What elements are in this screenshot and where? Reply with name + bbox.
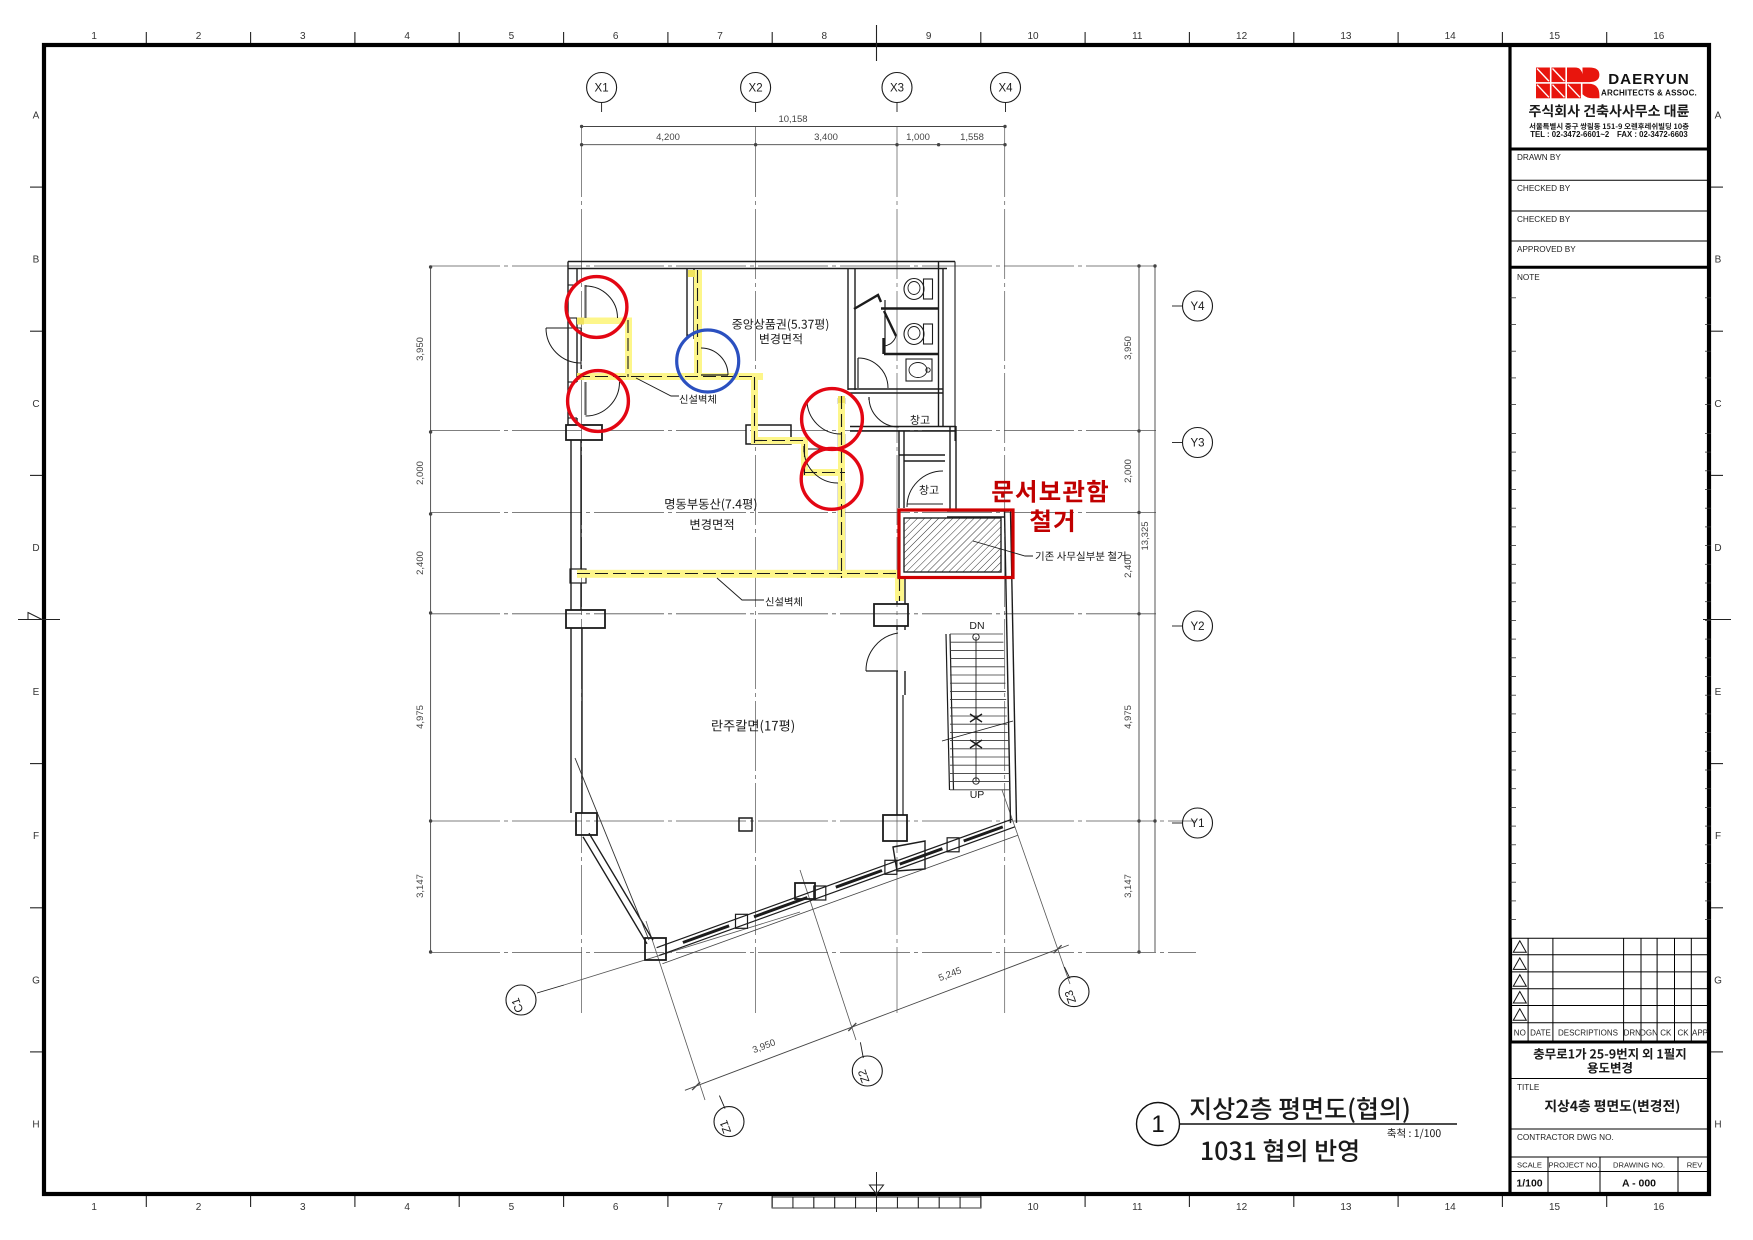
svg-text:16: 16	[1653, 1202, 1665, 1213]
svg-text:B: B	[1715, 255, 1722, 266]
svg-text:4: 4	[404, 1202, 410, 1213]
svg-text:ARCHITECTS & ASSOC.: ARCHITECTS & ASSOC.	[1601, 89, 1697, 98]
svg-text:3,147: 3,147	[415, 874, 426, 898]
svg-text:DESCRIPTIONS: DESCRIPTIONS	[1558, 1029, 1618, 1038]
svg-text:15: 15	[1549, 31, 1561, 42]
svg-text:APPROVED BY: APPROVED BY	[1517, 245, 1576, 254]
svg-text:2,000: 2,000	[415, 461, 426, 485]
svg-text:TITLE: TITLE	[1517, 1083, 1540, 1092]
svg-text:E: E	[1715, 687, 1722, 698]
svg-text:G: G	[1714, 975, 1722, 986]
svg-text:12: 12	[1236, 31, 1248, 42]
svg-text:DATE: DATE	[1530, 1029, 1551, 1038]
svg-text:TEL : 02-3472-6601~2 FAX : 02-: TEL : 02-3472-6601~2 FAX : 02-3472-6603	[1530, 130, 1688, 139]
svg-text:13: 13	[1340, 1202, 1352, 1213]
svg-text:PROJECT NO.: PROJECT NO.	[1549, 1161, 1600, 1170]
svg-text:4,975: 4,975	[415, 705, 426, 729]
svg-text:1/100: 1/100	[1516, 1178, 1542, 1190]
svg-text:1: 1	[91, 1202, 97, 1213]
svg-text:9: 9	[926, 31, 932, 42]
svg-text:16: 16	[1653, 31, 1665, 42]
svg-text:X2: X2	[749, 83, 763, 95]
svg-text:14: 14	[1445, 31, 1457, 42]
svg-text:12: 12	[1236, 1202, 1248, 1213]
svg-text:F: F	[33, 831, 39, 842]
svg-text:CONTRACTOR DWG NO.: CONTRACTOR DWG NO.	[1517, 1133, 1614, 1142]
svg-text:A: A	[33, 111, 40, 122]
svg-text:4,975: 4,975	[1123, 705, 1134, 729]
svg-text:10: 10	[1027, 1202, 1039, 1213]
svg-text:3,950: 3,950	[415, 337, 426, 361]
svg-text:DRAWING NO.: DRAWING NO.	[1613, 1161, 1665, 1170]
svg-text:X4: X4	[998, 83, 1013, 95]
svg-text:A: A	[1715, 111, 1722, 122]
svg-text:10,158: 10,158	[778, 114, 807, 125]
svg-text:1,558: 1,558	[960, 132, 984, 143]
svg-text:5: 5	[509, 1202, 515, 1213]
svg-text:CK: CK	[1660, 1029, 1672, 1038]
svg-text:15: 15	[1549, 1202, 1561, 1213]
svg-text:DN: DN	[969, 620, 984, 632]
svg-text:3: 3	[300, 1202, 306, 1213]
svg-text:2: 2	[196, 1202, 202, 1213]
svg-text:14: 14	[1445, 1202, 1457, 1213]
svg-text:H: H	[1714, 1119, 1721, 1130]
svg-text:13: 13	[1340, 31, 1352, 42]
svg-text:D: D	[1714, 543, 1721, 554]
svg-text:7: 7	[717, 1202, 723, 1213]
svg-text:5: 5	[509, 31, 515, 42]
svg-text:E: E	[33, 687, 40, 698]
svg-text:X3: X3	[890, 83, 904, 95]
svg-text:B: B	[33, 255, 40, 266]
svg-text:4,200: 4,200	[656, 132, 680, 143]
svg-text:X1: X1	[595, 83, 609, 95]
svg-text:3,950: 3,950	[1123, 336, 1134, 360]
svg-text:DRAWN BY: DRAWN BY	[1517, 153, 1561, 162]
svg-text:DAERYUN: DAERYUN	[1608, 71, 1690, 88]
svg-text:2,400: 2,400	[415, 551, 426, 575]
svg-text:SCALE: SCALE	[1517, 1161, 1542, 1170]
svg-text:Y1: Y1	[1190, 818, 1204, 830]
svg-text:2,000: 2,000	[1123, 459, 1134, 483]
svg-text:6: 6	[613, 1202, 619, 1213]
svg-text:C: C	[32, 399, 39, 410]
svg-text:H: H	[32, 1119, 39, 1130]
svg-text:6: 6	[613, 31, 619, 42]
svg-text:4: 4	[404, 31, 410, 42]
svg-text:Y4: Y4	[1190, 301, 1205, 313]
svg-text:1: 1	[1151, 1111, 1164, 1138]
svg-text:8: 8	[822, 31, 828, 42]
svg-text:Y2: Y2	[1190, 621, 1204, 633]
svg-text:1: 1	[91, 31, 97, 42]
svg-text:NOTE: NOTE	[1517, 273, 1540, 282]
svg-text:2: 2	[196, 31, 202, 42]
svg-text:3,400: 3,400	[814, 132, 838, 143]
svg-text:DGN: DGN	[1640, 1029, 1658, 1038]
svg-text:CK: CK	[1677, 1029, 1689, 1038]
svg-text:3: 3	[300, 31, 306, 42]
svg-text:13,325: 13,325	[1140, 521, 1151, 550]
svg-text:1,000: 1,000	[906, 132, 930, 143]
svg-text:11: 11	[1132, 1202, 1143, 1213]
svg-text:CHECKED BY: CHECKED BY	[1517, 184, 1571, 193]
svg-text:A - 000: A - 000	[1622, 1178, 1656, 1190]
svg-text:G: G	[32, 975, 40, 986]
svg-text:F: F	[1715, 831, 1721, 842]
svg-text:D: D	[32, 543, 39, 554]
svg-text:UP: UP	[970, 789, 985, 801]
svg-text:APP: APP	[1692, 1029, 1708, 1038]
svg-text:C: C	[1714, 399, 1721, 410]
svg-text:10: 10	[1027, 31, 1039, 42]
svg-text:CHECKED BY: CHECKED BY	[1517, 215, 1571, 224]
svg-text:Y3: Y3	[1190, 438, 1204, 450]
svg-text:11: 11	[1132, 31, 1143, 42]
svg-text:DRN: DRN	[1624, 1029, 1642, 1038]
svg-text:NO: NO	[1514, 1029, 1526, 1038]
svg-text:REV: REV	[1687, 1161, 1704, 1170]
svg-text:7: 7	[717, 31, 723, 42]
svg-text:3,147: 3,147	[1123, 874, 1134, 898]
